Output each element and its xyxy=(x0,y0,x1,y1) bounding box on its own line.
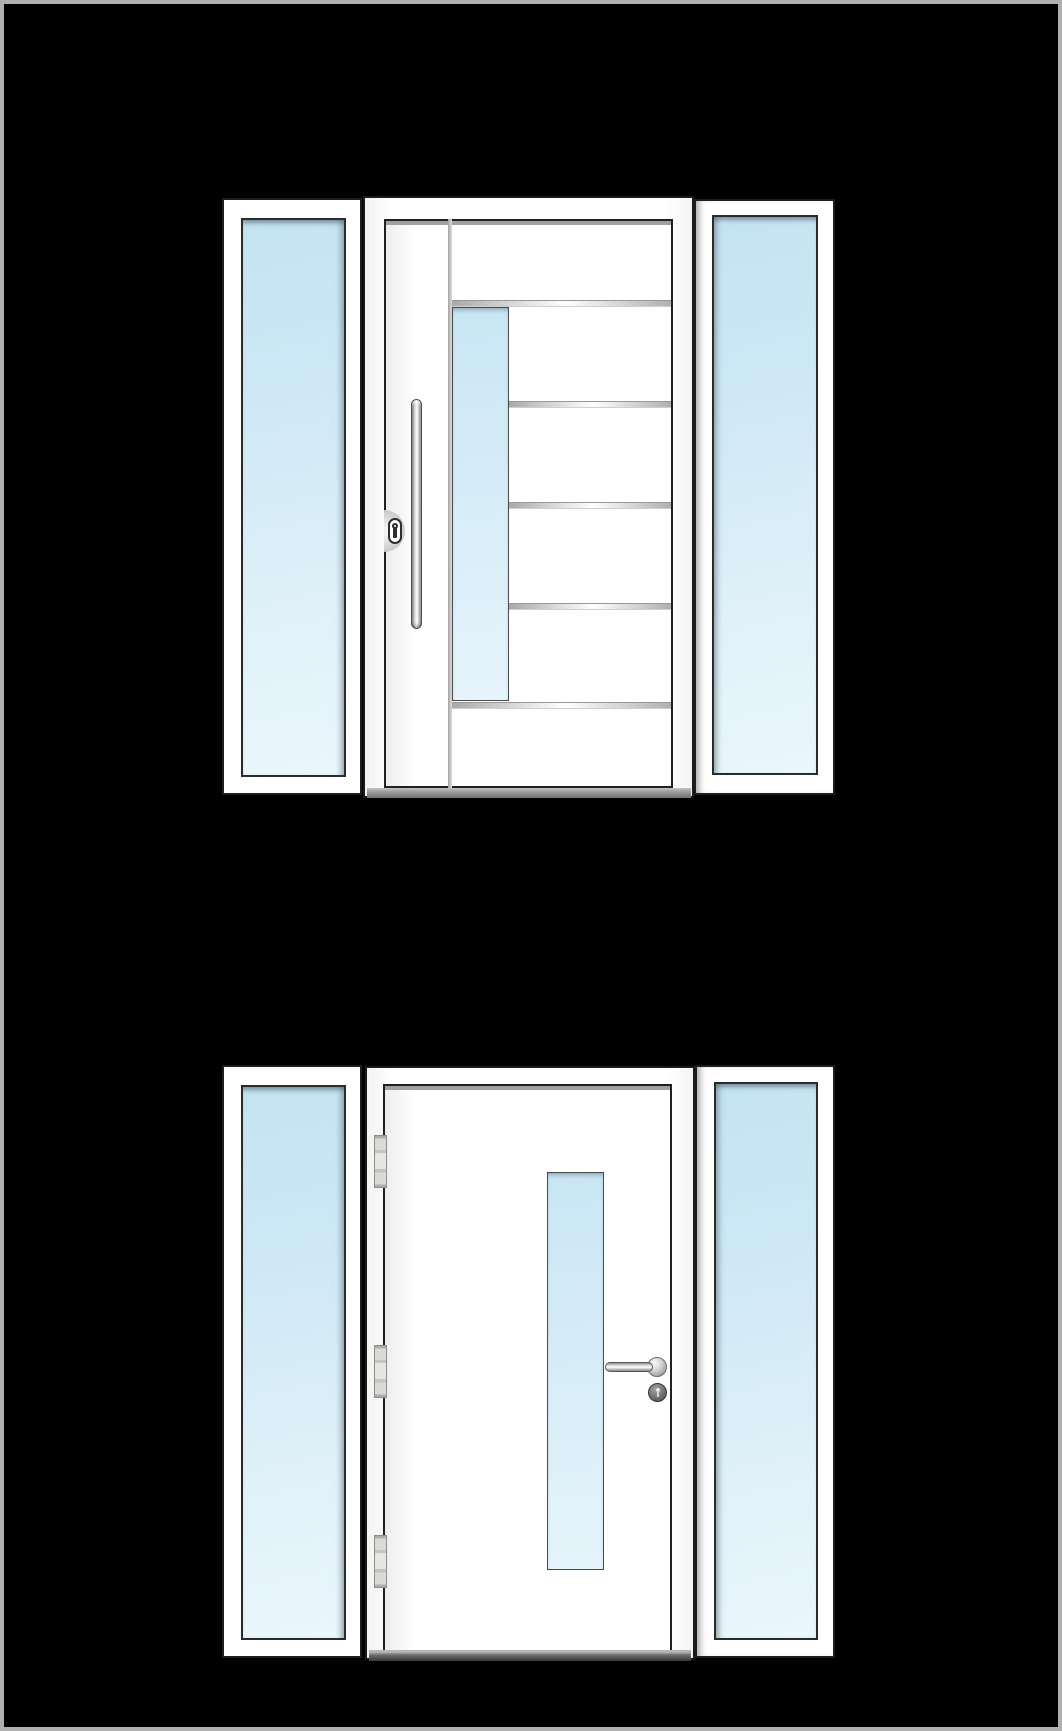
door-glazing-strip xyxy=(547,1172,604,1570)
right-sidelight-glass xyxy=(714,1082,818,1640)
keyhole-icon xyxy=(388,518,402,544)
door-threshold xyxy=(367,788,691,798)
inox-groove xyxy=(509,603,671,610)
door-glazing-strip xyxy=(452,307,509,701)
door-threshold xyxy=(369,1650,691,1661)
inox-groove xyxy=(509,401,671,408)
left-sidelight-glass xyxy=(241,218,346,777)
cylinder-escutcheon-icon xyxy=(648,1383,667,1402)
door-product-top[interactable] xyxy=(222,196,835,806)
inox-groove xyxy=(452,702,671,709)
right-sidelight-glass xyxy=(712,215,818,775)
inox-groove xyxy=(452,300,671,307)
hinge xyxy=(374,1345,387,1398)
lever-handle xyxy=(605,1362,653,1372)
hinge xyxy=(374,1135,387,1188)
catalog-canvas xyxy=(0,0,1062,1731)
left-sidelight-glass xyxy=(241,1085,346,1640)
inox-groove xyxy=(509,502,671,509)
door-product-bottom[interactable] xyxy=(222,1065,835,1675)
bar-pull-handle xyxy=(411,399,422,629)
hinge xyxy=(374,1535,387,1588)
